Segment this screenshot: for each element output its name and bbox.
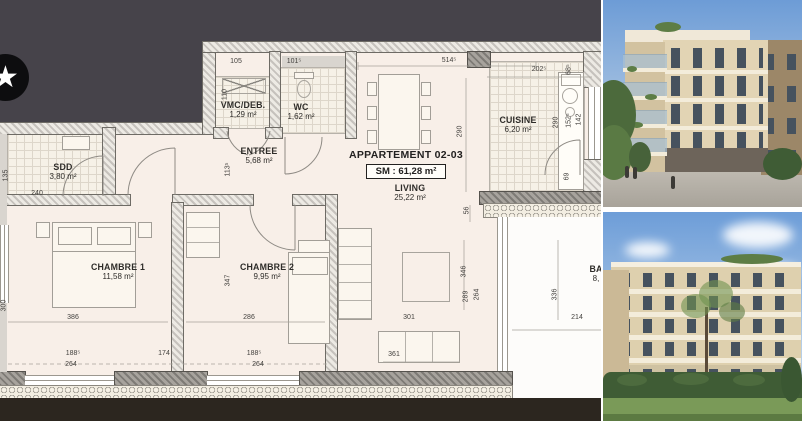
apartment-title: APPARTEMENT 02-03 <box>330 149 482 161</box>
dim-label: 347 <box>225 268 232 294</box>
dim-label: 56 <box>464 198 471 224</box>
dim-label: 110 <box>222 82 229 108</box>
dim-label: 101⁵ <box>281 58 307 65</box>
room-label-living: LIVING25,22 m² <box>365 184 455 202</box>
dim-label: 68⁵ <box>566 57 573 83</box>
room-label-sdd: SDD3,80 m² <box>18 163 108 181</box>
dim-label: 214 <box>564 314 590 321</box>
wall <box>203 42 215 134</box>
lawn-shadow <box>603 414 802 421</box>
room-label-chambre1: CHAMBRE 111,58 m² <box>73 263 163 281</box>
cloud <box>723 222 793 248</box>
plan-dark-background <box>211 0 601 42</box>
dim-label: 142 <box>576 107 583 133</box>
facade-wall <box>300 372 512 386</box>
apartment-surface-box: SM : 61,28 m² <box>366 164 447 179</box>
living-shelf <box>338 228 372 320</box>
building-front-face <box>663 40 768 172</box>
room-label-chambre2: CHAMBRE 29,95 m² <box>222 263 312 281</box>
plan-dark-background <box>0 0 213 125</box>
room-label-cuisine: CUISINE6,20 m² <box>473 116 563 134</box>
dim-label: 105 <box>223 58 249 65</box>
chair <box>367 106 377 120</box>
kitchen-window <box>588 87 601 160</box>
dim-label: 346 <box>461 259 468 285</box>
balcony-area <box>506 217 601 398</box>
ground-floor-glass <box>663 148 768 172</box>
bathroom-sink <box>62 136 90 150</box>
facade-wall <box>115 372 207 386</box>
living-balcony-glazing <box>497 217 508 375</box>
toilet-tank <box>294 72 314 79</box>
person-silhouette <box>625 166 629 178</box>
pillow <box>58 227 92 245</box>
bedroom1-side-window <box>0 225 9 303</box>
dim-label: 240 <box>24 190 50 197</box>
facade-wall <box>0 372 25 386</box>
dim-label: 290 <box>553 110 560 136</box>
wall <box>468 52 490 67</box>
nightstand <box>36 222 50 238</box>
facade-wall <box>480 192 601 204</box>
person-silhouette <box>671 176 675 189</box>
wall <box>346 52 356 138</box>
dim-label: 152⁵ <box>566 108 573 134</box>
dim-label: 290 <box>457 119 464 145</box>
dim-label: 336 <box>552 282 559 308</box>
bedroom2-window <box>207 375 300 386</box>
wall <box>0 195 130 205</box>
apartment-title-block: APPARTEMENT 02-03 SM : 61,28 m² <box>330 149 482 179</box>
listing-page: ★ <box>0 0 802 421</box>
dim-label: 69 <box>564 164 571 190</box>
wall <box>266 128 282 138</box>
chair <box>421 130 431 144</box>
chair <box>367 130 377 144</box>
dining-table <box>378 74 420 150</box>
nightstand <box>138 222 152 238</box>
roof-plant <box>655 22 681 32</box>
dim-label: 361 <box>381 351 407 358</box>
kitchen-sink <box>562 88 578 104</box>
dim-label: 301 <box>396 314 422 321</box>
wall <box>584 160 601 192</box>
chair <box>367 82 377 96</box>
wall <box>584 52 601 87</box>
dim-label: 135 <box>3 163 10 189</box>
chair <box>421 82 431 96</box>
wall <box>214 128 228 138</box>
dim-label: 286 <box>236 314 262 321</box>
ventilation-unit <box>222 78 266 94</box>
balcony-plant <box>627 66 637 72</box>
room-label-wc: WC1,62 m² <box>256 103 346 121</box>
ground-strip <box>0 398 601 421</box>
hedge <box>603 372 802 400</box>
dim-label: 264 <box>245 361 271 368</box>
roof-plants <box>721 254 783 264</box>
insulation-band <box>0 386 512 398</box>
dim-label: 264 <box>58 361 84 368</box>
pillow <box>97 227 131 245</box>
room-label-balcon-clipped: BA8, <box>551 265 601 283</box>
building-left-face <box>603 270 629 388</box>
wall <box>173 195 253 205</box>
bush <box>763 148 802 180</box>
building-photo-bottom <box>603 212 802 421</box>
chair <box>421 106 431 120</box>
living-rug <box>402 252 450 302</box>
tree-foliage <box>719 302 745 322</box>
wardrobe-chambre2 <box>186 212 220 258</box>
person-silhouette <box>633 167 637 179</box>
building-photo-top <box>603 0 802 207</box>
desk-chambre2 <box>298 240 330 253</box>
bush <box>781 357 802 402</box>
dim-label: 386 <box>60 314 86 321</box>
toilet-bowl <box>297 80 311 98</box>
dim-label: 289 <box>463 284 470 310</box>
dim-label: 514⁵ <box>436 57 462 64</box>
dim-label: 174 <box>151 350 177 357</box>
cloud <box>625 242 670 258</box>
dim-label: 188⁵ <box>241 350 267 357</box>
balcony-plant <box>645 94 657 100</box>
sideboard <box>378 331 460 363</box>
bedroom1-window <box>25 375 115 386</box>
dim-label: 113⁵ <box>225 157 232 183</box>
dim-label: 188⁵ <box>60 350 86 357</box>
insulation-band <box>484 204 601 217</box>
blanket-line <box>53 251 135 252</box>
dim-label: 264 <box>474 282 481 308</box>
dim-label: 202⁵ <box>526 66 552 73</box>
wall <box>203 42 601 52</box>
tree-trunk <box>705 307 708 379</box>
dim-label: 300 <box>1 293 8 319</box>
floor-plan: ★ <box>0 0 601 421</box>
